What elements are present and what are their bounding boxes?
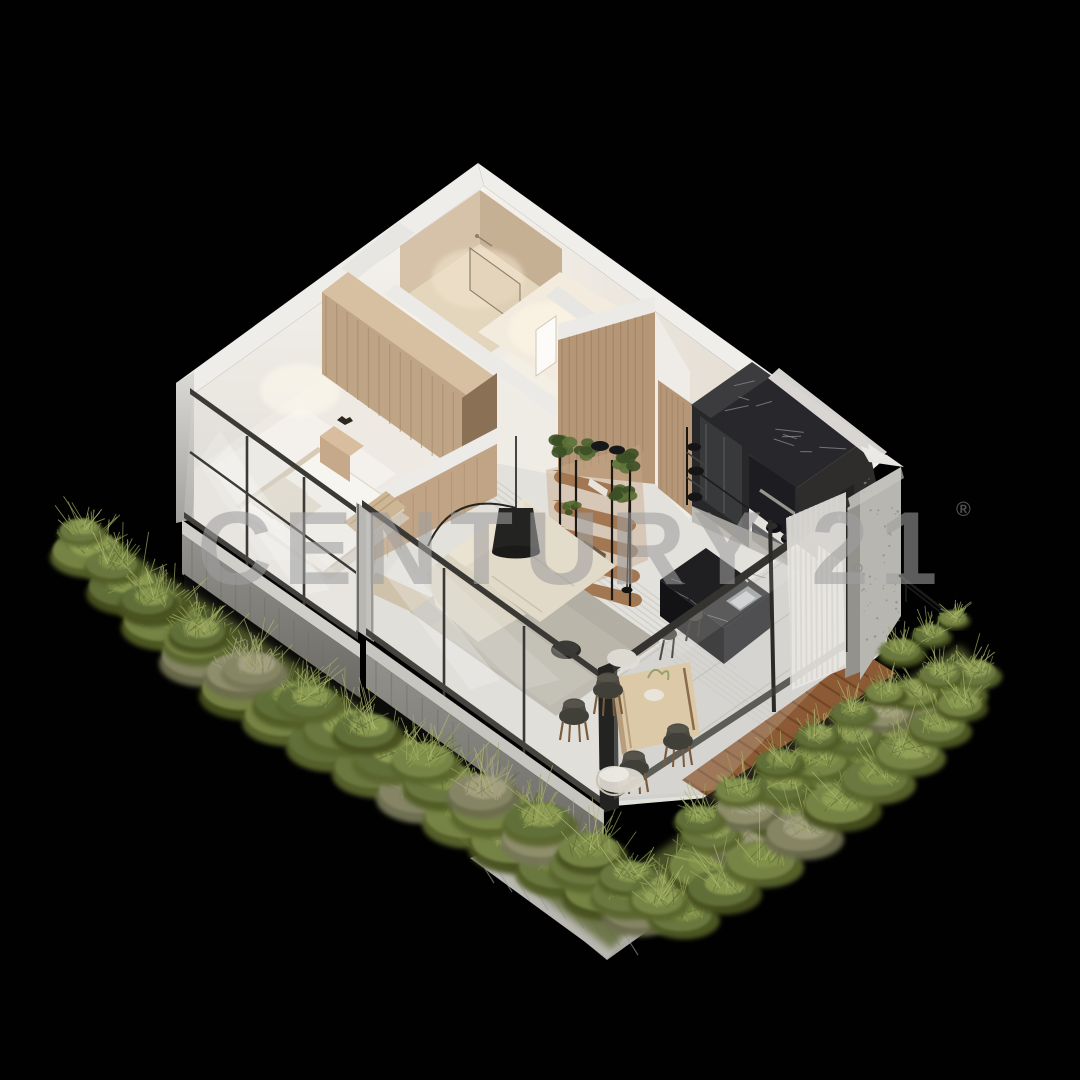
svg-text:CENTURY 21: CENTURY 21: [197, 491, 949, 607]
svg-text:®: ®: [956, 499, 971, 521]
